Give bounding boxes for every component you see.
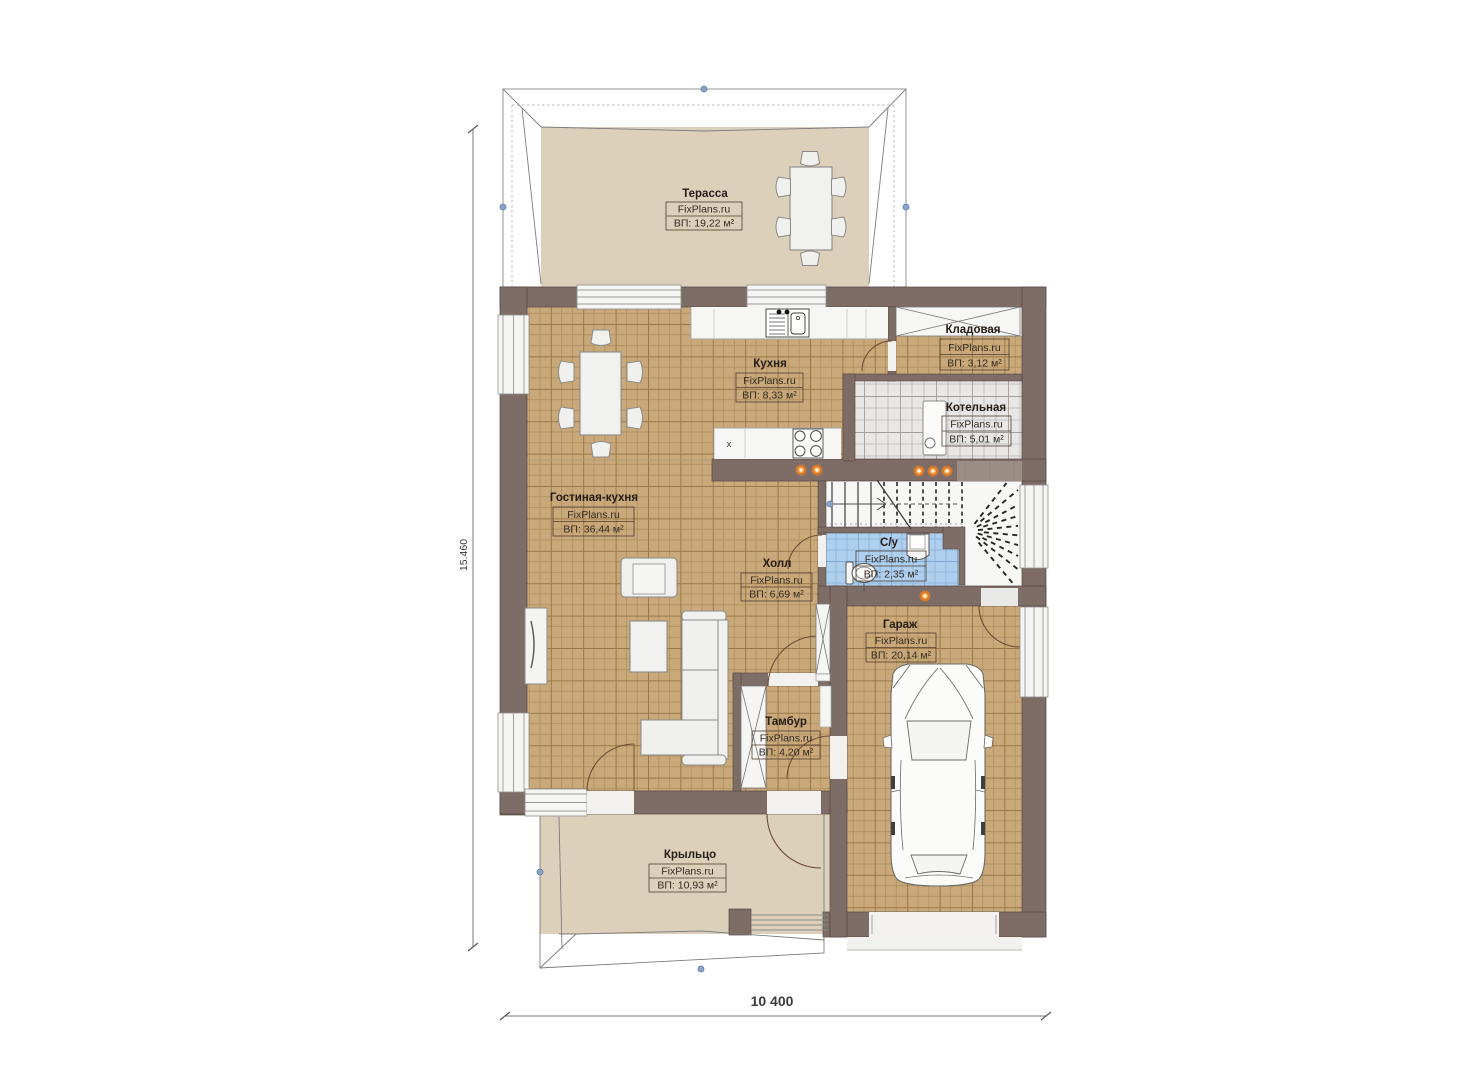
svg-text:Гостиная-кухня: Гостиная-кухня [550,492,638,504]
svg-text:ВП: 4,20 м²: ВП: 4,20 м² [759,747,814,759]
svg-text:Гараж: Гараж [883,619,918,631]
svg-text:FixPlans.ru: FixPlans.ru [865,554,918,566]
svg-text:15.460: 15.460 [458,539,470,571]
svg-text:ВП: 2,35 м²: ВП: 2,35 м² [864,569,919,581]
svg-text:х: х [727,439,732,450]
svg-text:FixPlans.ru: FixPlans.ru [661,866,714,878]
svg-text:ВП: 10,93 м²: ВП: 10,93 м² [657,880,718,892]
svg-text:Кладовая: Кладовая [945,324,1000,336]
svg-text:FixPlans.ru: FixPlans.ru [743,375,796,387]
svg-text:FixPlans.ru: FixPlans.ru [678,204,731,216]
svg-text:ВП: 3,12 м²: ВП: 3,12 м² [947,358,1002,370]
svg-text:ВП: 20,14 м²: ВП: 20,14 м² [871,650,932,662]
svg-text:ВП: 5,01 м²: ВП: 5,01 м² [949,434,1004,446]
svg-text:Крыльцо: Крыльцо [664,849,716,861]
svg-text:Тамбур: Тамбур [765,716,807,728]
svg-text:10 400: 10 400 [751,993,794,1009]
svg-text:FixPlans.ru: FixPlans.ru [875,635,928,647]
svg-text:ВП: 36,44 м²: ВП: 36,44 м² [563,524,624,536]
svg-text:Холл: Холл [763,558,792,570]
svg-text:ВП: 6,69 м²: ВП: 6,69 м² [749,589,804,601]
svg-text:Терасса: Терасса [682,188,728,200]
svg-text:С/у: С/у [880,537,899,549]
svg-text:FixPlans.ru: FixPlans.ru [567,509,620,521]
svg-text:ВП: 19,22 м²: ВП: 19,22 м² [674,218,735,230]
svg-text:FixPlans.ru: FixPlans.ru [750,575,803,587]
svg-text:Кухня: Кухня [753,358,787,370]
svg-text:FixPlans.ru: FixPlans.ru [948,342,1001,354]
svg-text:FixPlans.ru: FixPlans.ru [760,733,813,745]
svg-text:Котельная: Котельная [946,402,1006,414]
svg-text:FixPlans.ru: FixPlans.ru [950,419,1003,431]
svg-text:ВП: 8,33 м²: ВП: 8,33 м² [742,390,797,402]
